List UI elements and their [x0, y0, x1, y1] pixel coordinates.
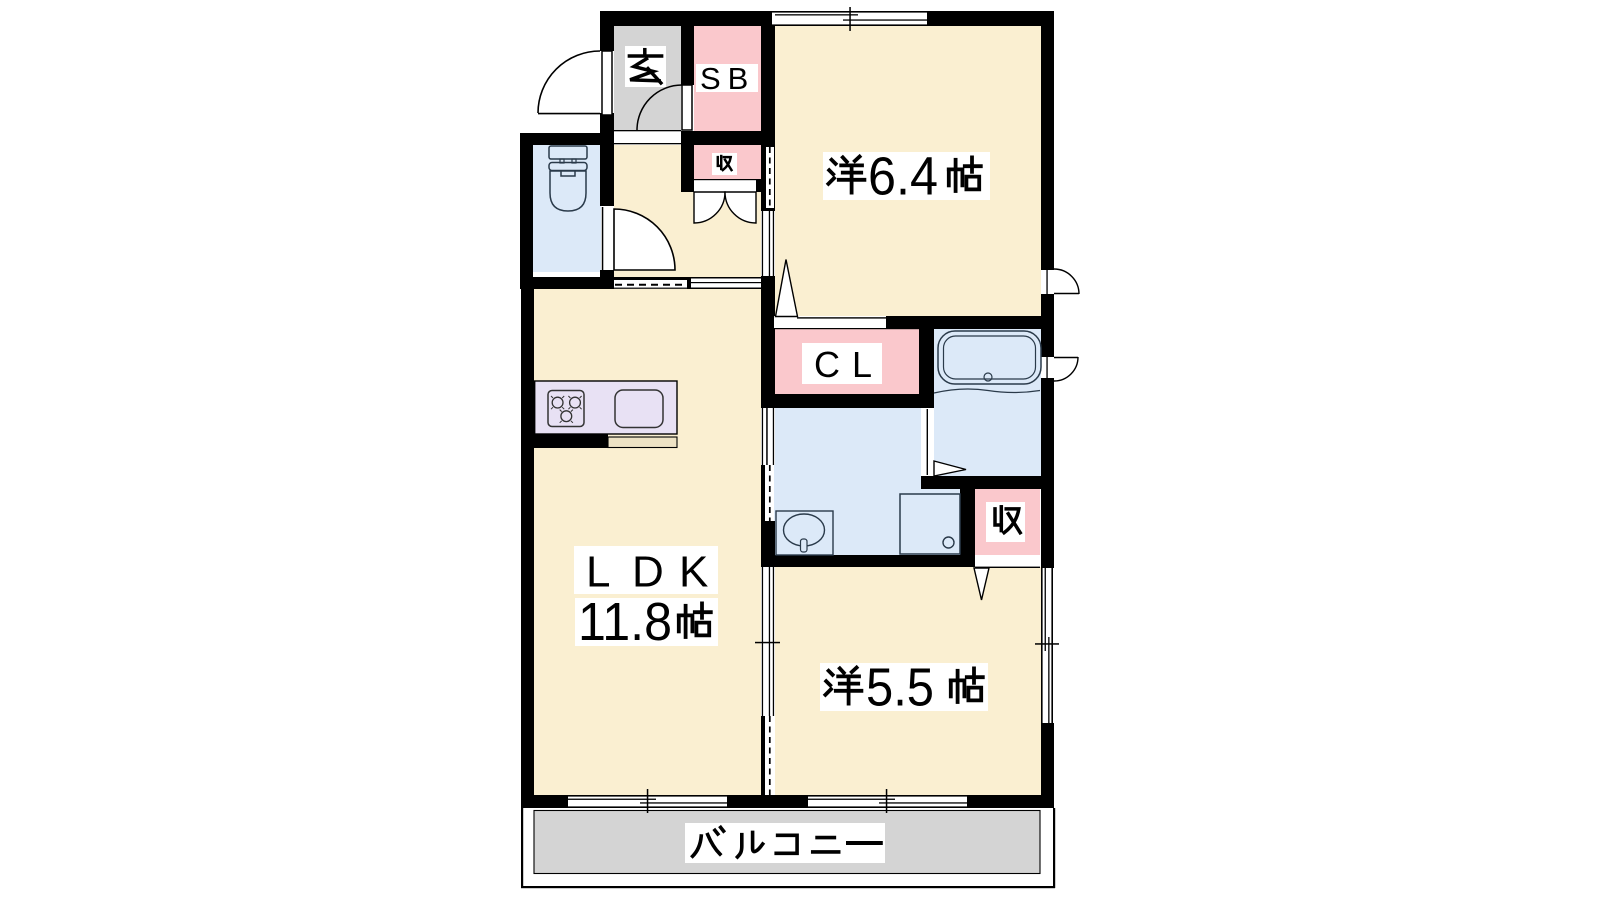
svg-text:11.8: 11.8: [578, 592, 672, 652]
svg-text:L: L: [586, 548, 610, 597]
svg-text:L: L: [852, 344, 872, 385]
svg-text:SB: SB: [700, 61, 755, 96]
svg-text:6.4: 6.4: [868, 147, 938, 207]
svg-text:D: D: [632, 548, 664, 597]
svg-text:C: C: [814, 344, 840, 385]
svg-text:K: K: [679, 548, 708, 597]
svg-text:5.5: 5.5: [866, 658, 934, 718]
